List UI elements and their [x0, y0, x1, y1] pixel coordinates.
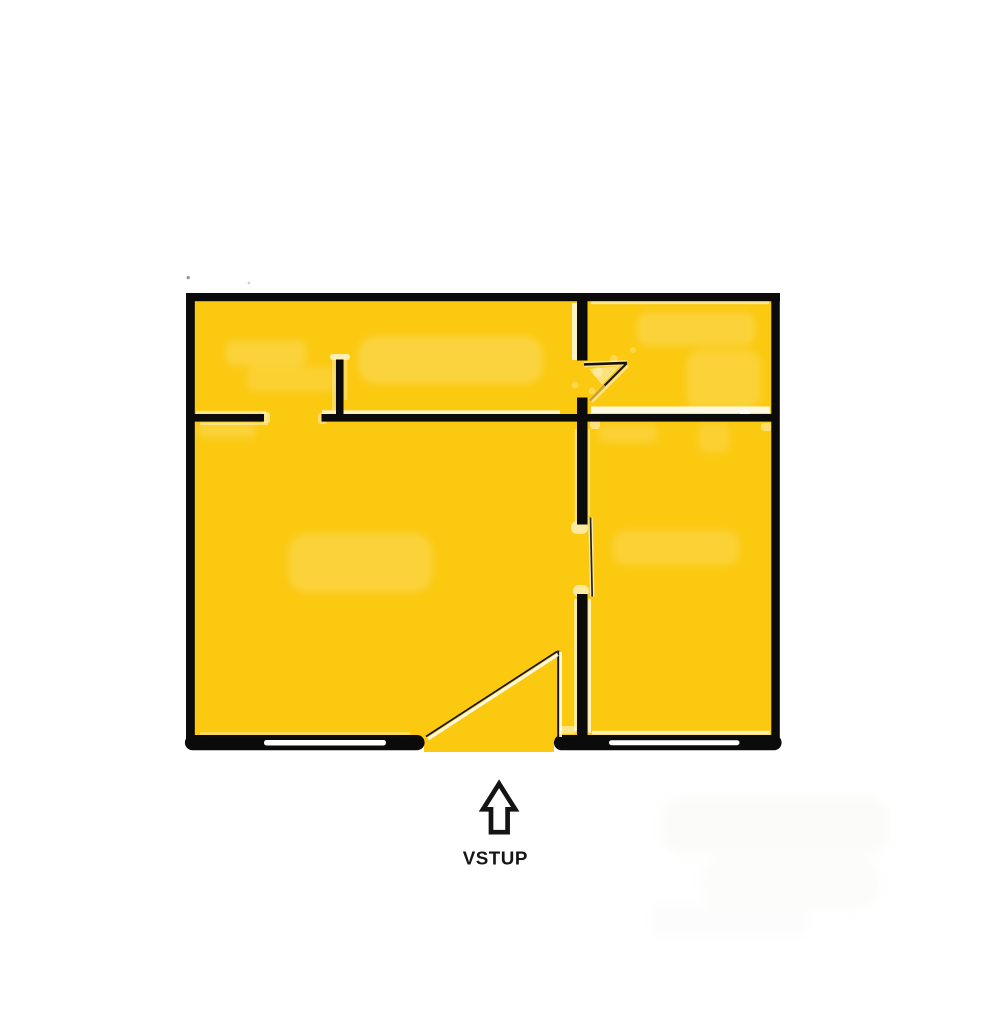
svg-text:VSTUP: VSTUP [463, 848, 528, 869]
